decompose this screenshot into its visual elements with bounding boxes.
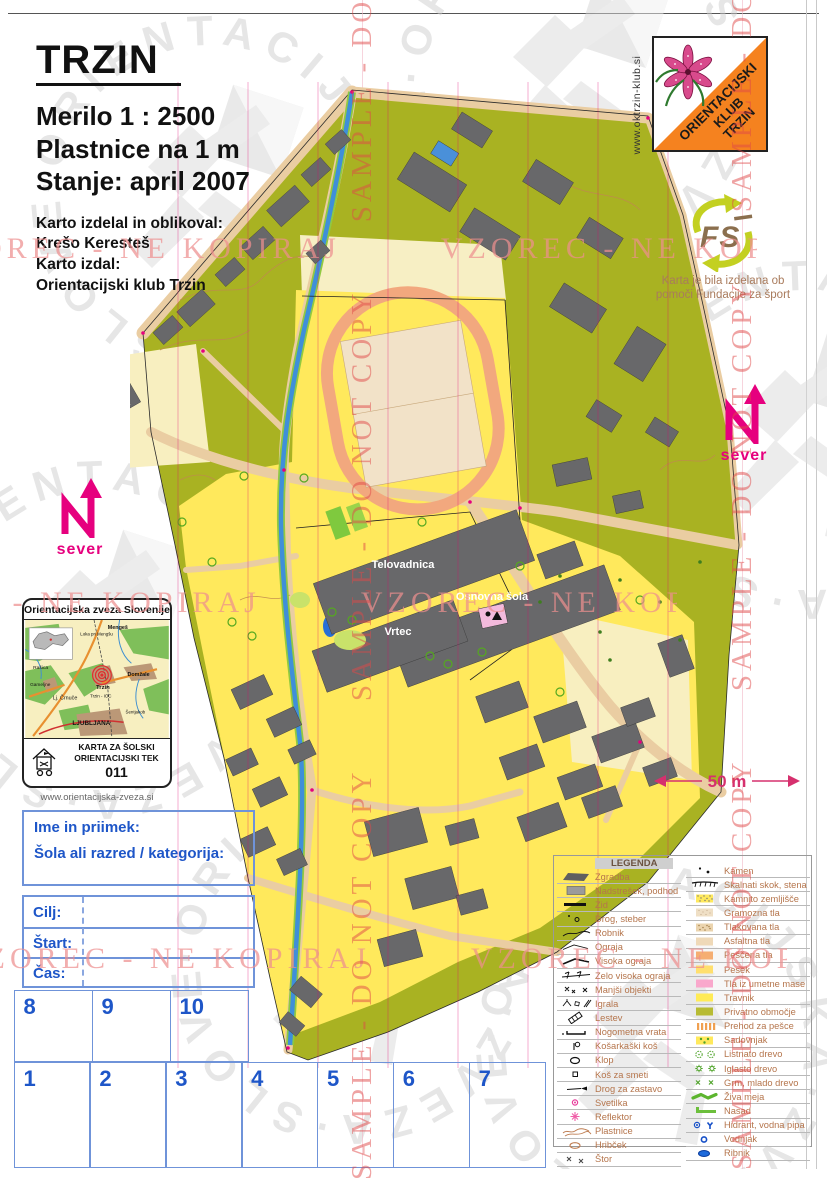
control-cell: 8 <box>14 990 94 1062</box>
legend-row: Peščena tla <box>686 949 810 963</box>
legend-row: Prehod za pešce <box>686 1020 810 1034</box>
legend-label: Manjši objekti <box>595 985 651 995</box>
legend-row: Kamnito zemljišče <box>686 892 810 906</box>
legend-row: Skalnati skok, stena <box>686 878 810 892</box>
hedge-icon <box>686 1090 724 1103</box>
credit-line: Krešo Keresteš <box>36 234 250 255</box>
north-arrow-icon <box>49 476 111 538</box>
legend-row: Svetilka <box>557 1096 681 1110</box>
legend-label: Svetilka <box>595 1098 628 1108</box>
legend-row: Košarkaški koš <box>557 1040 681 1054</box>
legend-row: Vodnjak <box>686 1133 810 1147</box>
legend-label: Grm, mlado drevo <box>724 1078 798 1088</box>
legend-row: Nogometna vrata <box>557 1026 681 1040</box>
private-icon <box>686 1005 724 1018</box>
control-number: 5 <box>318 1063 393 1092</box>
fs-caption-line2: pomoči Fundacije za šport <box>630 288 816 302</box>
control-number: 4 <box>242 1063 317 1092</box>
bench-icon <box>557 1054 595 1067</box>
hydrant-icon <box>686 1119 724 1132</box>
pole-icon <box>557 912 595 925</box>
legend-label: Koš za smeti <box>595 1070 648 1080</box>
legend-label: Nadstrešek, podhod <box>595 886 678 896</box>
playground-icon <box>557 997 595 1010</box>
scale-bar: 50 m <box>652 760 802 800</box>
club-logo: ORIENTACIJSKI KLUB TRZIN <box>652 36 768 152</box>
kindergarten-label: Vrtec <box>385 626 412 638</box>
map-scale-info: Merilo 1 : 2500 Plastnice na 1 m Stanje:… <box>36 100 250 198</box>
legend-label: Listnato drevo <box>724 1049 782 1059</box>
legend-row: Iglasto drevo <box>686 1062 810 1076</box>
legend-right-column: KamenSkalnati skok, stenaKamnito zemljiš… <box>686 857 810 1161</box>
legend-row: Tla iz umetne mase <box>686 977 810 991</box>
legend-label: Drog za zastavo <box>595 1084 662 1094</box>
legend-row: Grm, mlado drevo <box>686 1076 810 1090</box>
legend-label: Travnik <box>724 993 754 1003</box>
building-icon <box>557 870 595 883</box>
sand-icon <box>686 963 724 976</box>
scale-line: Merilo 1 : 2500 <box>36 100 250 133</box>
fence-very-high-icon <box>557 969 595 982</box>
control-number: 7 <box>470 1063 545 1092</box>
time-label: Čas: <box>33 965 66 982</box>
north-arrow-label: sever <box>44 541 116 559</box>
ozs-region-map: Mengeš Loka pri Mengšu Rašica Trzin Domž… <box>24 619 170 739</box>
legend-row: Igrala <box>557 997 681 1011</box>
canopy-icon <box>557 884 595 897</box>
control-number: 10 <box>171 991 249 1020</box>
dashed-divider <box>82 897 84 986</box>
legend-label: Igrala <box>595 999 618 1009</box>
control-cell: 4 <box>241 1062 318 1168</box>
place-label: Domžale <box>127 672 149 678</box>
control-cell: 1 <box>14 1062 91 1168</box>
control-cell: 6 <box>393 1062 470 1168</box>
title-block: TRZIN Merilo 1 : 2500 Plastnice na 1 m S… <box>36 40 250 297</box>
lamp-icon <box>557 1096 595 1109</box>
control-grid-top: 8910 <box>15 990 249 1062</box>
basket-icon <box>557 1040 595 1053</box>
small-objects-icon <box>557 983 595 996</box>
legend-row: Reflektor <box>557 1110 681 1124</box>
ozs-map-number: 011 <box>63 764 170 780</box>
slovenia-inset <box>29 628 72 659</box>
crossing-icon <box>686 1020 724 1033</box>
contour-line: Plastnice na 1 m <box>36 133 250 166</box>
plantation-icon <box>686 1104 724 1117</box>
control-number: 6 <box>394 1063 469 1092</box>
flagpole-icon <box>557 1082 595 1095</box>
place-label: Trzin - IOC <box>90 694 112 699</box>
ozs-footer-line1: KARTA ZA ŠOLSKI <box>63 742 170 753</box>
ozs-footer: KARTA ZA ŠOLSKI ORIENTACIJSKI TEK 011 <box>24 739 170 783</box>
legend-label: Sadovnjak <box>724 1035 767 1045</box>
synthetic-icon <box>686 977 724 990</box>
ozs-website: www.orientacijska-zveza.si <box>22 792 172 803</box>
grass-icon <box>686 991 724 1004</box>
north-arrow-label: sever <box>708 447 780 465</box>
legend-row: Travnik <box>686 991 810 1005</box>
legend-label: Kamnito zemljišče <box>724 894 799 904</box>
floodlight-icon <box>557 1110 595 1123</box>
legend-label: Štor <box>595 1154 612 1164</box>
legend-label: Košarkaški koš <box>595 1041 658 1051</box>
legend-row: Manjši objekti <box>557 983 681 997</box>
legend-row: Hidrant, vodna pipa <box>686 1119 810 1133</box>
legend-label: Privatno območje <box>724 1007 796 1017</box>
school-label: Osnovna šola <box>456 591 529 603</box>
times-box: Cilj: Štart: Čas: <box>22 895 255 988</box>
ladder-icon <box>557 1011 595 1024</box>
place-label: Loka pri Mengšu <box>80 632 113 637</box>
legend-row: Plastnice <box>557 1125 681 1139</box>
legend-label: Visoka ograja <box>595 956 651 966</box>
conifer-icon <box>686 1062 724 1075</box>
legend-label: Nasad <box>724 1106 751 1116</box>
curb-icon <box>557 927 595 940</box>
legend-label: Gramozna tla <box>724 908 780 918</box>
legend-label: Peščena tla <box>724 950 773 960</box>
cliff-icon <box>686 878 724 891</box>
legend-label: Lestev <box>595 1013 622 1023</box>
fence-high-icon <box>557 955 595 968</box>
north-arrow-icon <box>713 382 775 444</box>
legend-row: Ribnik <box>686 1147 810 1161</box>
control-number: 3 <box>166 1063 241 1092</box>
legend-row: Klop <box>557 1054 681 1068</box>
ozs-footer-line2: ORIENTACIJSKI TEK <box>63 753 170 764</box>
credit-line: Orientacijski klub Trzin <box>36 276 250 297</box>
legend-label: Tla iz umetne mase <box>724 979 805 989</box>
place-label: Gameljne <box>30 682 51 688</box>
legend-title: LEGENDA <box>595 858 673 869</box>
legend-row: Sadovnjak <box>686 1034 810 1048</box>
place-label: LJUBLJANA <box>72 720 110 727</box>
credit-line: Karto izdelal in oblikoval: <box>36 214 250 235</box>
legend-label: Hribček <box>595 1140 627 1150</box>
legend-label: Drog, steber <box>595 914 646 924</box>
place-label: Šentjakob <box>126 708 146 714</box>
stony-ground-icon <box>686 892 724 905</box>
control-cell: 7 <box>469 1062 546 1168</box>
control-cell: 3 <box>165 1062 242 1168</box>
legend-row: Gramozna tla <box>686 906 810 920</box>
legend-label: Skalnati skok, stena <box>724 880 807 890</box>
place-label: Lj. Črnuče <box>53 695 78 702</box>
fs-logo-text: FS <box>700 221 740 254</box>
stone-icon <box>686 864 724 877</box>
control-cell: 2 <box>89 1062 166 1168</box>
legend-row: Zgradba <box>557 870 681 884</box>
legend-label: Zgradba <box>595 872 630 882</box>
fs-foundation-logo: FS <box>676 192 772 272</box>
control-number: 2 <box>90 1063 165 1092</box>
legend-label: Tlakovana tla <box>724 922 779 932</box>
legend: LEGENDA ZgradbaNadstrešek, podhodZidDrog… <box>553 855 812 1147</box>
gravel-icon <box>686 906 724 919</box>
legend-row: Listnato drevo <box>686 1048 810 1062</box>
fence-icon <box>557 941 595 954</box>
credits: Karto izdelal in oblikoval:Krešo Kereste… <box>36 214 250 297</box>
control-cell: 5 <box>317 1062 394 1168</box>
knoll-icon <box>557 1139 595 1152</box>
legend-label: Nogometna vrata <box>595 1027 666 1037</box>
school-label: Šola ali razred / kategorija: <box>34 845 243 862</box>
place-label: Trzin <box>96 685 110 691</box>
wall-icon <box>557 898 595 911</box>
place-label: Rašica <box>33 665 48 671</box>
legend-label: Kamen <box>724 866 753 876</box>
legend-label: Robnik <box>595 928 624 938</box>
control-number: 9 <box>93 991 171 1020</box>
legend-row: Hribček <box>557 1139 681 1153</box>
club-website: www.oktrzin-klub.si <box>631 40 645 170</box>
legend-row: Lestev <box>557 1011 681 1025</box>
legend-row: Asfaltna tla <box>686 935 810 949</box>
legend-label: Plastnice <box>595 1126 633 1136</box>
legend-row: Nadstrešek, podhod <box>557 884 681 898</box>
legend-row: Drog, steber <box>557 912 681 926</box>
legend-row: Živa meja <box>686 1090 810 1104</box>
control-cell: 10 <box>170 990 250 1062</box>
legend-label: Vodnjak <box>724 1134 757 1144</box>
north-arrow-right: sever <box>708 382 780 465</box>
contours-icon <box>557 1125 595 1138</box>
stump-icon <box>557 1153 595 1166</box>
legend-label: Zid <box>595 900 608 910</box>
credit-line: Karto izdal: <box>36 255 250 276</box>
school-orienteering-icon <box>27 743 63 779</box>
legend-row: Zid <box>557 898 681 912</box>
legend-row: Visoka ograja <box>557 955 681 969</box>
legend-row: Tlakovana tla <box>686 921 810 935</box>
legend-title-row: LEGENDA <box>557 857 681 870</box>
orchard-icon <box>686 1034 724 1047</box>
legend-left-column: LEGENDA ZgradbaNadstrešek, podhodZidDrog… <box>557 857 681 1167</box>
scale-bar-label: 50 m <box>708 772 747 791</box>
finish-label: Cilj: <box>33 904 61 921</box>
name-label: Ime in priimek: <box>34 819 243 836</box>
status-line: Stanje: april 2007 <box>36 165 250 198</box>
start-label: Štart: <box>33 935 72 952</box>
legend-row: Ograja <box>557 941 681 955</box>
legend-row: Pesek <box>686 963 810 977</box>
legend-label: Klop <box>595 1055 614 1065</box>
bush-icon <box>686 1076 724 1089</box>
control-number: 8 <box>15 991 93 1020</box>
pond-icon <box>686 1147 724 1160</box>
gym-label: Telovadnica <box>372 559 436 571</box>
control-cell: 9 <box>92 990 172 1062</box>
north-arrow-left: sever <box>44 476 116 559</box>
bin-icon <box>557 1068 595 1081</box>
competitor-info-box: Ime in priimek: Šola ali razred / katego… <box>22 810 255 886</box>
fs-caption: Karta je bila izdelana ob pomoči Fundaci… <box>630 274 816 303</box>
fs-caption-line1: Karta je bila izdelana ob <box>630 274 816 288</box>
legend-label: Živa meja <box>724 1092 764 1102</box>
place-label: Mengeš <box>108 625 128 631</box>
map-title: TRZIN <box>36 40 181 86</box>
legend-label: Prehod za pešce <box>724 1021 794 1031</box>
legend-row: Štor <box>557 1153 681 1167</box>
ozs-info-box: Orientacijska zveza Slovenije <box>22 598 172 788</box>
deciduous-icon <box>686 1048 724 1061</box>
legend-row: Koš za smeti <box>557 1068 681 1082</box>
control-number: 1 <box>15 1063 90 1092</box>
paving-icon <box>686 921 724 934</box>
legend-row: Nasad <box>686 1104 810 1118</box>
goal-icon <box>557 1026 595 1039</box>
asphalt-icon <box>686 935 724 948</box>
legend-row: Privatno območje <box>686 1005 810 1019</box>
legend-label: Iglasto drevo <box>724 1064 777 1074</box>
sandy-ground-icon <box>686 949 724 962</box>
legend-row: Kamen <box>686 864 810 878</box>
legend-label: Ribnik <box>724 1148 750 1158</box>
control-grid-bottom: 1234567 <box>15 1062 546 1168</box>
legend-label: Pesek <box>724 965 750 975</box>
legend-row: Robnik <box>557 927 681 941</box>
legend-row: Drog za zastavo <box>557 1082 681 1096</box>
legend-label: Zelo visoka ograja <box>595 971 670 981</box>
well-icon <box>686 1133 724 1146</box>
legend-row: Zelo visoka ograja <box>557 969 681 983</box>
legend-label: Hidrant, vodna pipa <box>724 1120 805 1130</box>
legend-label: Ograja <box>595 942 623 952</box>
ozs-header: Orientacijska zveza Slovenije <box>24 600 170 619</box>
legend-label: Reflektor <box>595 1112 632 1122</box>
legend-label: Asfaltna tla <box>724 936 770 946</box>
